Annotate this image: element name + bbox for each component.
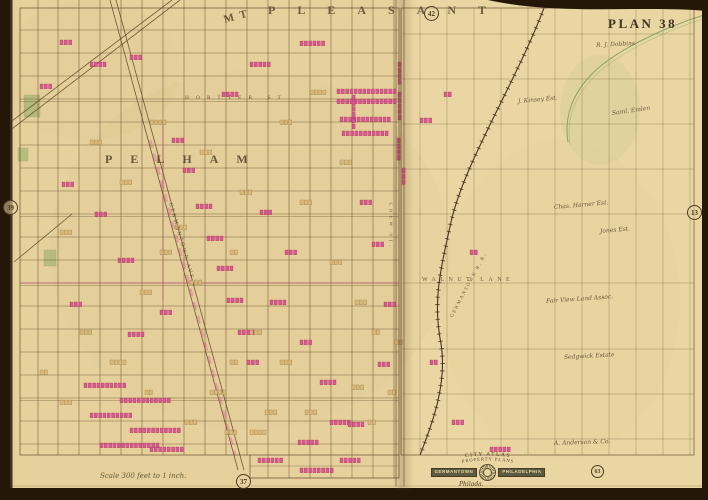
- building: [216, 236, 219, 241]
- building: [126, 443, 129, 448]
- building: [385, 131, 388, 136]
- building: [69, 400, 72, 405]
- building: [265, 410, 268, 415]
- building: [294, 250, 297, 255]
- building: [370, 117, 373, 122]
- building: [196, 204, 199, 209]
- building: [267, 62, 270, 67]
- building: [340, 160, 343, 165]
- building: [380, 99, 383, 104]
- building: [354, 89, 357, 94]
- building: [334, 420, 337, 425]
- cartouche-ribbon-right: PHILADELPHIA: [498, 468, 545, 478]
- building: [381, 131, 384, 136]
- building: [117, 443, 120, 448]
- building: [352, 124, 355, 129]
- building: [236, 298, 239, 303]
- building: [118, 383, 121, 388]
- building: [44, 370, 47, 375]
- building: [79, 302, 82, 307]
- building: [304, 468, 307, 473]
- building: [258, 458, 261, 463]
- building: [309, 200, 312, 205]
- building: [364, 131, 367, 136]
- building: [262, 458, 265, 463]
- building: [309, 41, 312, 46]
- building: [164, 310, 167, 315]
- building: [360, 200, 363, 205]
- building: [304, 200, 307, 205]
- building: [119, 360, 122, 365]
- building: [94, 62, 97, 67]
- building: [367, 99, 370, 104]
- building: [444, 92, 447, 97]
- building: [227, 298, 230, 303]
- building: [225, 430, 228, 435]
- building: [122, 258, 125, 263]
- building: [89, 330, 92, 335]
- building: [185, 420, 188, 425]
- building: [284, 120, 287, 125]
- building: [448, 92, 451, 97]
- building: [275, 458, 278, 463]
- building: [269, 410, 272, 415]
- building: [64, 230, 67, 235]
- building: [289, 360, 292, 365]
- building: [310, 90, 313, 95]
- building: [384, 99, 387, 104]
- building: [183, 168, 186, 173]
- building: [172, 447, 175, 452]
- building: [357, 458, 360, 463]
- building: [302, 440, 305, 445]
- building: [350, 89, 353, 94]
- building: [250, 330, 253, 335]
- building: [274, 410, 277, 415]
- building: [163, 120, 166, 125]
- building: [199, 280, 202, 285]
- building: [110, 360, 113, 365]
- building: [376, 242, 379, 247]
- building: [384, 302, 387, 307]
- building: [143, 443, 146, 448]
- building: [44, 84, 47, 89]
- street-label: HORTTER ST: [185, 95, 288, 101]
- building: [154, 447, 157, 452]
- building: [140, 290, 143, 295]
- building: [264, 210, 267, 215]
- building: [329, 380, 332, 385]
- building: [372, 420, 375, 425]
- building: [69, 230, 72, 235]
- adjacent-plate-ref-right: 13: [687, 205, 702, 220]
- building: [146, 398, 149, 403]
- building: [95, 212, 98, 217]
- building: [280, 360, 283, 365]
- building: [330, 468, 333, 473]
- building: [163, 398, 166, 403]
- building: [160, 428, 163, 433]
- building: [339, 260, 342, 265]
- building: [349, 458, 352, 463]
- building: [88, 383, 91, 388]
- building: [147, 428, 150, 433]
- building: [352, 385, 355, 390]
- building: [184, 225, 187, 230]
- building: [284, 360, 287, 365]
- building: [320, 380, 323, 385]
- building: [368, 420, 371, 425]
- building: [231, 298, 234, 303]
- building: [342, 131, 345, 136]
- building: [159, 398, 162, 403]
- building: [101, 383, 104, 388]
- building: [359, 99, 362, 104]
- building: [424, 118, 427, 123]
- building: [357, 422, 360, 427]
- building: [256, 360, 259, 365]
- building: [330, 420, 333, 425]
- building: [137, 332, 140, 337]
- building: [123, 360, 126, 365]
- building: [129, 180, 132, 185]
- building: [363, 89, 366, 94]
- building: [230, 266, 233, 271]
- building: [104, 212, 107, 217]
- building: [330, 260, 333, 265]
- building: [114, 360, 117, 365]
- building: [461, 420, 464, 425]
- building: [333, 380, 336, 385]
- building: [367, 89, 370, 94]
- building: [371, 99, 374, 104]
- building: [251, 360, 254, 365]
- building: [349, 160, 352, 165]
- building: [280, 120, 283, 125]
- building: [217, 266, 220, 271]
- building: [110, 383, 113, 388]
- building: [304, 340, 307, 345]
- building: [192, 168, 195, 173]
- building: [344, 160, 347, 165]
- building: [214, 390, 217, 395]
- building: [269, 210, 272, 215]
- building: [134, 443, 137, 448]
- building: [322, 468, 325, 473]
- building: [66, 182, 69, 187]
- building: [305, 410, 308, 415]
- building: [160, 250, 163, 255]
- building: [238, 330, 241, 335]
- building: [340, 458, 343, 463]
- building: [355, 300, 358, 305]
- building: [381, 242, 384, 247]
- building: [221, 266, 224, 271]
- building: [356, 385, 359, 390]
- book-edge-right: [702, 0, 708, 500]
- building: [139, 443, 142, 448]
- building: [90, 140, 93, 145]
- building: [154, 120, 157, 125]
- publisher-seal-icon: [479, 464, 496, 481]
- book-edge-bottom: [0, 488, 708, 500]
- building: [352, 95, 355, 100]
- adjacent-plate-ref-bottom-right: 63: [591, 465, 604, 478]
- building: [315, 440, 318, 445]
- building: [372, 242, 375, 247]
- building: [129, 398, 132, 403]
- building: [230, 360, 233, 365]
- building: [112, 413, 115, 418]
- building: [113, 443, 116, 448]
- building: [143, 428, 146, 433]
- building: [341, 99, 344, 104]
- building: [359, 89, 362, 94]
- cartouche-ribbons: GERMANTOWN PHILADELPHIA: [423, 464, 553, 481]
- building: [103, 62, 106, 67]
- building: [352, 101, 355, 106]
- adjacent-plate-ref-top: 42: [424, 6, 439, 21]
- building: [280, 458, 283, 463]
- building: [60, 40, 63, 45]
- building: [207, 236, 210, 241]
- building: [194, 420, 197, 425]
- building: [94, 413, 97, 418]
- building: [247, 360, 250, 365]
- building: [134, 428, 137, 433]
- building: [352, 118, 355, 123]
- building: [169, 250, 172, 255]
- building: [374, 117, 377, 122]
- building: [99, 212, 102, 217]
- building: [176, 447, 179, 452]
- building: [90, 413, 93, 418]
- building: [74, 302, 77, 307]
- building: [364, 300, 367, 305]
- building: [84, 383, 87, 388]
- building: [271, 458, 274, 463]
- building: [164, 250, 167, 255]
- building: [150, 447, 153, 452]
- building: [144, 290, 147, 295]
- building: [357, 117, 360, 122]
- book-edge-left-inner: [10, 0, 13, 500]
- building: [376, 99, 379, 104]
- building: [169, 428, 172, 433]
- building: [378, 362, 381, 367]
- building: [298, 440, 301, 445]
- building: [124, 398, 127, 403]
- building: [285, 250, 288, 255]
- map-drawing: [0, 0, 708, 500]
- building: [49, 84, 52, 89]
- building: [229, 430, 232, 435]
- building: [114, 383, 117, 388]
- building: [344, 458, 347, 463]
- building: [289, 120, 292, 125]
- building: [234, 430, 237, 435]
- building: [205, 204, 208, 209]
- building: [314, 90, 317, 95]
- building: [69, 40, 72, 45]
- building: [362, 117, 365, 122]
- building: [234, 360, 237, 365]
- building: [180, 447, 183, 452]
- building: [124, 413, 127, 418]
- building: [150, 398, 153, 403]
- building: [309, 468, 312, 473]
- building: [100, 443, 103, 448]
- building: [99, 140, 102, 145]
- building: [474, 250, 477, 255]
- building: [267, 458, 270, 463]
- building: [149, 390, 152, 395]
- building: [103, 413, 106, 418]
- building: [154, 398, 157, 403]
- building: [176, 138, 179, 143]
- building: [340, 117, 343, 122]
- building: [94, 140, 97, 145]
- building: [371, 89, 374, 94]
- district-label-pelham: PELHAM: [105, 152, 266, 167]
- building: [122, 443, 125, 448]
- cartouche-ribbon-left: GERMANTOWN: [431, 468, 478, 478]
- building: [116, 413, 119, 418]
- building: [274, 300, 277, 305]
- building: [420, 118, 423, 123]
- building: [223, 390, 226, 395]
- building: [300, 41, 303, 46]
- building: [139, 428, 142, 433]
- building: [384, 89, 387, 94]
- building: [341, 89, 344, 94]
- building: [120, 413, 123, 418]
- building: [210, 390, 213, 395]
- building: [366, 117, 369, 122]
- building: [64, 40, 67, 45]
- building: [156, 428, 159, 433]
- building: [309, 340, 312, 345]
- building: [387, 362, 390, 367]
- building: [352, 422, 355, 427]
- building: [260, 210, 263, 215]
- building: [452, 420, 455, 425]
- building: [372, 131, 375, 136]
- building: [470, 250, 473, 255]
- building: [300, 468, 303, 473]
- building: [139, 55, 142, 60]
- building: [62, 182, 65, 187]
- building: [368, 131, 371, 136]
- building: [352, 107, 355, 112]
- district-label-pleasant: PLEASANT: [268, 3, 508, 18]
- building: [254, 330, 257, 335]
- building: [254, 430, 257, 435]
- building: [361, 385, 364, 390]
- atlas-plate-scan: PLAN 38 MT PLEASANT PELHAM 42 39 13 37 6…: [0, 0, 708, 500]
- building: [60, 400, 63, 405]
- building: [323, 90, 326, 95]
- building: [369, 200, 372, 205]
- building: [120, 180, 123, 185]
- building: [289, 250, 292, 255]
- building: [361, 422, 364, 427]
- building: [376, 330, 379, 335]
- building: [64, 400, 67, 405]
- building: [177, 428, 180, 433]
- building: [130, 55, 133, 60]
- building: [71, 182, 74, 187]
- building: [160, 310, 163, 315]
- building: [429, 118, 432, 123]
- building: [346, 99, 349, 104]
- building: [359, 300, 362, 305]
- plate-number-label: PLAN 38: [608, 16, 677, 32]
- building: [80, 330, 83, 335]
- building: [259, 330, 262, 335]
- publisher-cartouche: CITY ATLAS PROPERTY PLANS GERMANTOWN PHI…: [423, 446, 553, 484]
- building: [314, 410, 317, 415]
- building: [344, 117, 347, 122]
- building: [250, 62, 253, 67]
- building: [137, 398, 140, 403]
- building: [189, 420, 192, 425]
- building: [104, 443, 107, 448]
- building: [247, 330, 250, 335]
- building: [259, 62, 262, 67]
- building: [167, 398, 170, 403]
- building: [123, 383, 126, 388]
- building: [60, 230, 63, 235]
- building: [106, 383, 109, 388]
- building: [132, 332, 135, 337]
- building: [149, 290, 152, 295]
- building: [319, 90, 322, 95]
- building: [270, 300, 273, 305]
- building: [242, 330, 245, 335]
- building: [250, 430, 253, 435]
- building: [343, 420, 346, 425]
- building: [220, 236, 223, 241]
- building: [456, 420, 459, 425]
- building: [163, 447, 166, 452]
- building: [84, 330, 87, 335]
- building: [311, 440, 314, 445]
- building: [133, 398, 136, 403]
- building: [346, 89, 349, 94]
- building: [300, 340, 303, 345]
- building: [339, 420, 342, 425]
- building: [230, 250, 233, 255]
- building: [130, 443, 133, 448]
- building: [313, 468, 316, 473]
- building: [376, 89, 379, 94]
- building: [376, 131, 379, 136]
- building: [172, 138, 175, 143]
- building: [353, 458, 356, 463]
- building: [263, 430, 266, 435]
- building: [159, 447, 162, 452]
- building: [109, 443, 112, 448]
- building: [169, 310, 172, 315]
- building: [99, 413, 102, 418]
- building: [219, 390, 222, 395]
- scale-note: Scale 300 feet to 1 inch.: [100, 472, 186, 480]
- building: [130, 428, 133, 433]
- building: [152, 428, 155, 433]
- building: [134, 55, 137, 60]
- building: [90, 62, 93, 67]
